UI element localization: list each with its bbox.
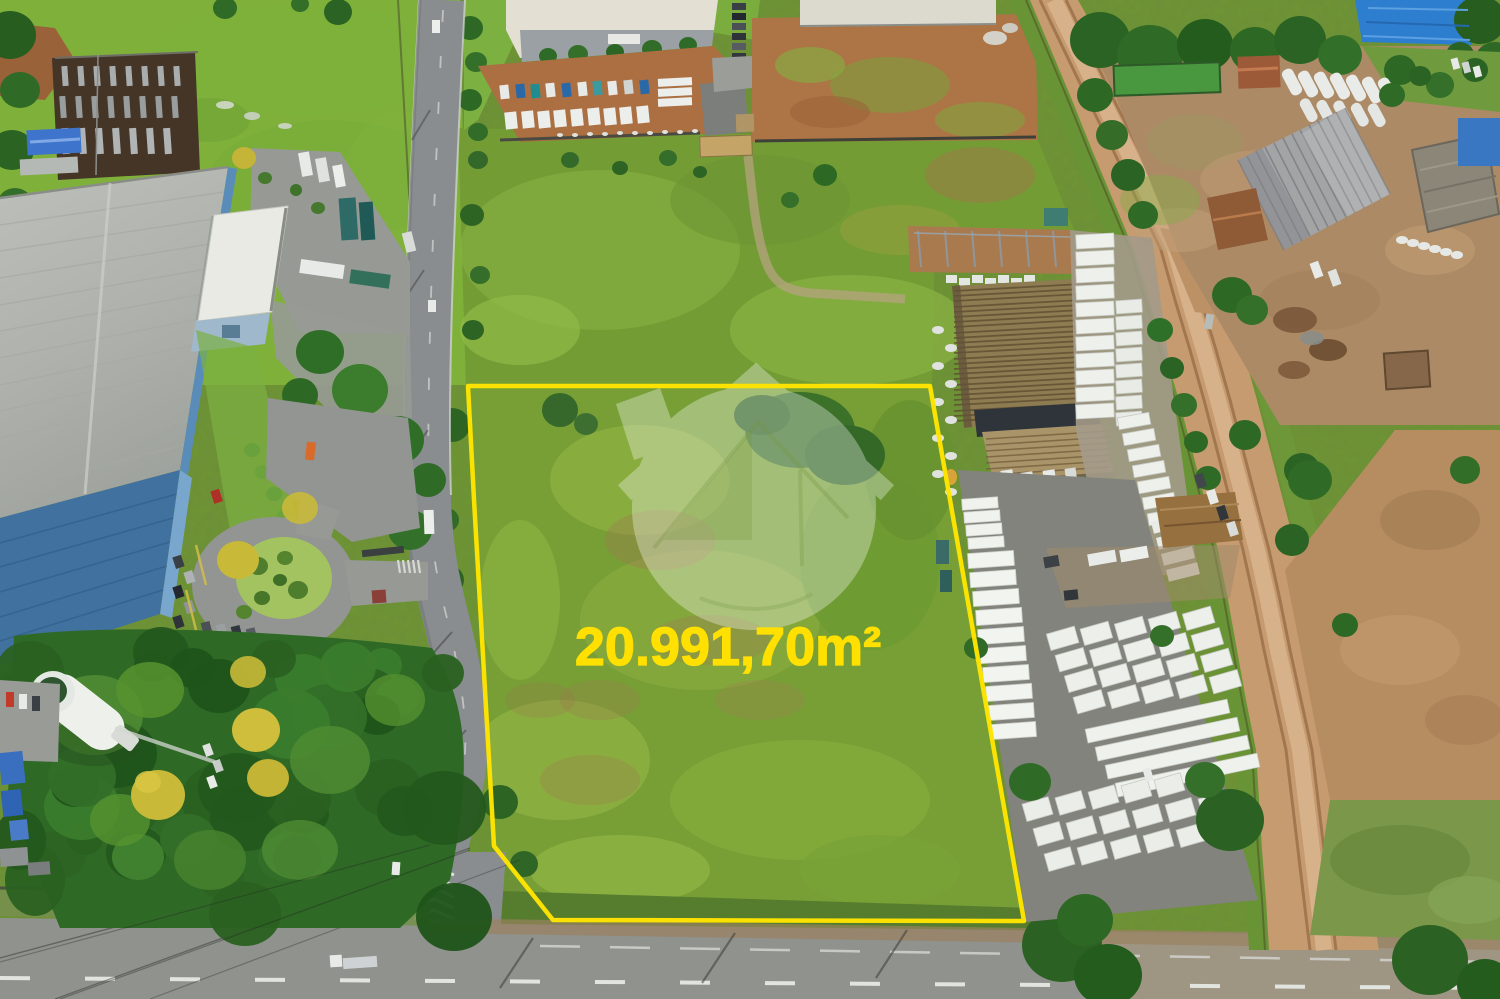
svg-text:20.991,70m²: 20.991,70m² (575, 617, 881, 677)
